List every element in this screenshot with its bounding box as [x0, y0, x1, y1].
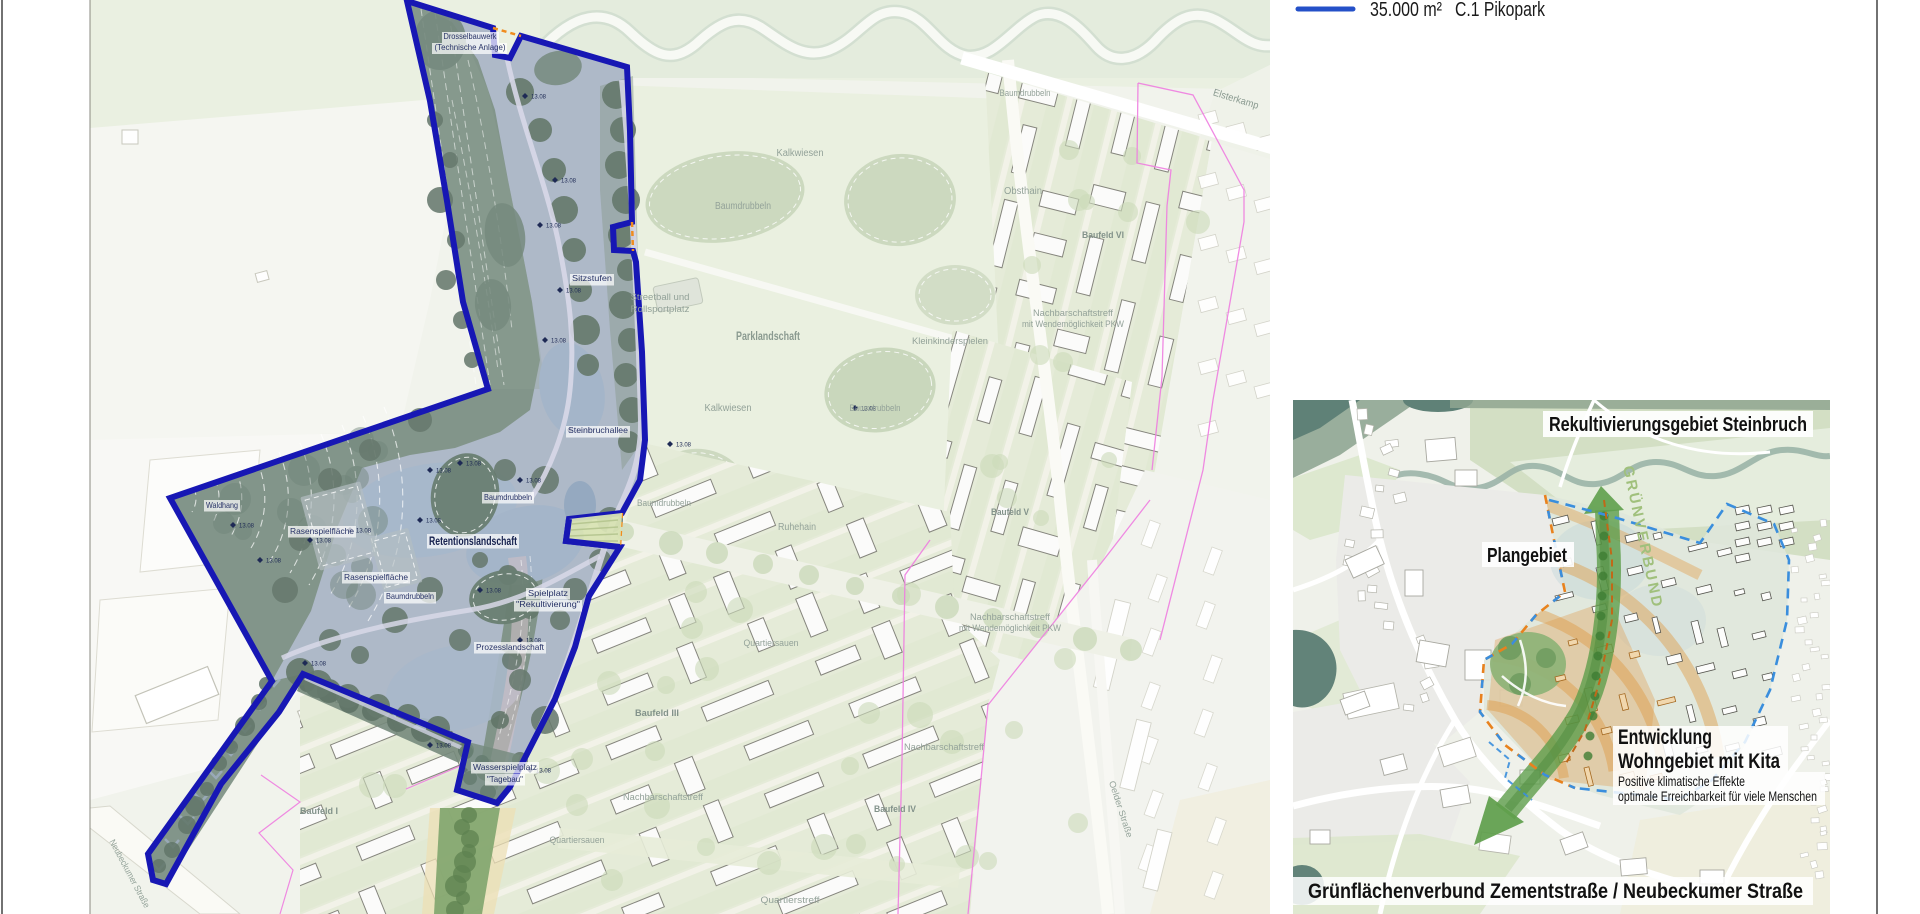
svg-text:mit Wendemöglichkeit PKW: mit Wendemöglichkeit PKW: [959, 623, 1061, 633]
svg-text:Drosselbauwerk: Drosselbauwerk: [444, 32, 498, 41]
svg-text:Rasenspielfläche: Rasenspielfläche: [290, 526, 354, 536]
svg-text:Baufeld V: Baufeld V: [991, 507, 1030, 518]
svg-text:Quartiersauen: Quartiersauen: [744, 638, 799, 648]
svg-text:Ruhehain: Ruhehain: [778, 522, 816, 533]
svg-text:13.08: 13.08: [466, 462, 482, 468]
svg-text:13.08: 13.08: [566, 289, 582, 295]
svg-text:Sitzstufen: Sitzstufen: [572, 273, 612, 283]
svg-text:13.08: 13.08: [266, 559, 282, 565]
svg-text:13.08: 13.08: [436, 744, 452, 750]
svg-text:Baufeld III: Baufeld III: [635, 708, 679, 719]
svg-text:Rekultivierungsgebiet Steinbr: Rekultivierungsgebiet Steinbruch: [1549, 414, 1807, 436]
svg-text:Nachbarschaftstreff: Nachbarschaftstreff: [904, 742, 985, 752]
svg-text:(Technische Anlage): (Technische Anlage): [435, 43, 506, 52]
svg-text:Entwicklung: Entwicklung: [1618, 726, 1712, 749]
svg-text:Baufeld VI: Baufeld VI: [1082, 230, 1124, 241]
svg-text:Baumdrubbeln: Baumdrubbeln: [1000, 88, 1051, 98]
svg-text:Positive klimatische Effekte: Positive klimatische Effekte: [1618, 773, 1745, 789]
svg-text:Waldhang: Waldhang: [206, 500, 238, 510]
svg-text:C.1 Pikopark: C.1 Pikopark: [1455, 0, 1546, 21]
svg-text:13.08: 13.08: [426, 519, 442, 525]
svg-text:13.08: 13.08: [239, 524, 255, 530]
svg-text:Kalkwiesen: Kalkwiesen: [777, 148, 824, 159]
svg-text:Baumdrubbeln: Baumdrubbeln: [637, 498, 691, 509]
svg-text:Nachbarschaftstreff: Nachbarschaftstreff: [623, 792, 704, 802]
svg-text:Quartierstreff: Quartierstreff: [761, 895, 821, 905]
svg-text:"Tagebau": "Tagebau": [487, 774, 523, 784]
svg-text:mit Wendemöglichkeit PKW: mit Wendemöglichkeit PKW: [1022, 319, 1124, 329]
svg-text:Kleinkinderspielen: Kleinkinderspielen: [912, 336, 988, 346]
svg-text:Prozesslandschaft: Prozesslandschaft: [476, 642, 545, 652]
svg-text:Baumdrubbeln: Baumdrubbeln: [484, 492, 532, 502]
svg-text:Grünflächenverbund Zementstra: Grünflächenverbund Zementstraße / Neubec…: [1308, 880, 1803, 903]
svg-text:Rollsportplatz: Rollsportplatz: [631, 304, 691, 314]
svg-text:Wohngebiet mit Kita: Wohngebiet mit Kita: [1618, 750, 1780, 773]
svg-text:Quartiersauen: Quartiersauen: [550, 835, 605, 845]
svg-text:13.08: 13.08: [486, 589, 502, 595]
svg-text:13.08: 13.08: [311, 662, 327, 668]
svg-text:Parklandschaft: Parklandschaft: [736, 329, 800, 343]
svg-text:Baumdrubbeln: Baumdrubbeln: [850, 403, 901, 413]
svg-text:Nachbarschaftstreff: Nachbarschaftstreff: [970, 612, 1051, 622]
svg-text:Retentionslandschaft: Retentionslandschaft: [429, 536, 517, 548]
svg-text:optimale Erreichbarkeit für vi: optimale Erreichbarkeit für viele Mensch…: [1618, 788, 1817, 804]
svg-text:Baumdrubbeln: Baumdrubbeln: [386, 591, 434, 601]
svg-text:13.08: 13.08: [356, 529, 372, 535]
svg-text:"Rekultivierung": "Rekultivierung": [516, 599, 580, 609]
svg-text:Wasserspielplatz: Wasserspielplatz: [473, 762, 537, 772]
svg-text:Spielplatz: Spielplatz: [528, 588, 568, 598]
svg-text:Baufeld IV: Baufeld IV: [874, 804, 917, 815]
svg-text:35.000 m²: 35.000 m²: [1370, 0, 1442, 21]
svg-text:Baufeld I: Baufeld I: [300, 806, 338, 817]
svg-text:13.08: 13.08: [531, 95, 547, 101]
svg-text:Baumdrubbeln: Baumdrubbeln: [715, 201, 771, 212]
svg-text:Obsthain: Obsthain: [1004, 186, 1042, 197]
svg-text:Streetball und: Streetball und: [631, 292, 690, 302]
svg-text:Kalkwiesen: Kalkwiesen: [705, 403, 752, 414]
svg-text:13.08: 13.08: [551, 339, 567, 345]
svg-text:13.08: 13.08: [676, 443, 692, 449]
svg-text:Nachbarschaftstreff: Nachbarschaftstreff: [1033, 308, 1114, 318]
svg-text:13.08: 13.08: [526, 479, 542, 485]
svg-text:13.08: 13.08: [546, 224, 562, 230]
svg-text:13.08: 13.08: [316, 539, 332, 545]
svg-text:Plangebiet: Plangebiet: [1487, 545, 1567, 567]
svg-text:Rasenspielfläche: Rasenspielfläche: [344, 572, 408, 582]
svg-text:13.08: 13.08: [436, 469, 452, 475]
svg-text:13.08: 13.08: [561, 179, 577, 185]
svg-text:Steinbruchallee: Steinbruchallee: [568, 425, 628, 435]
